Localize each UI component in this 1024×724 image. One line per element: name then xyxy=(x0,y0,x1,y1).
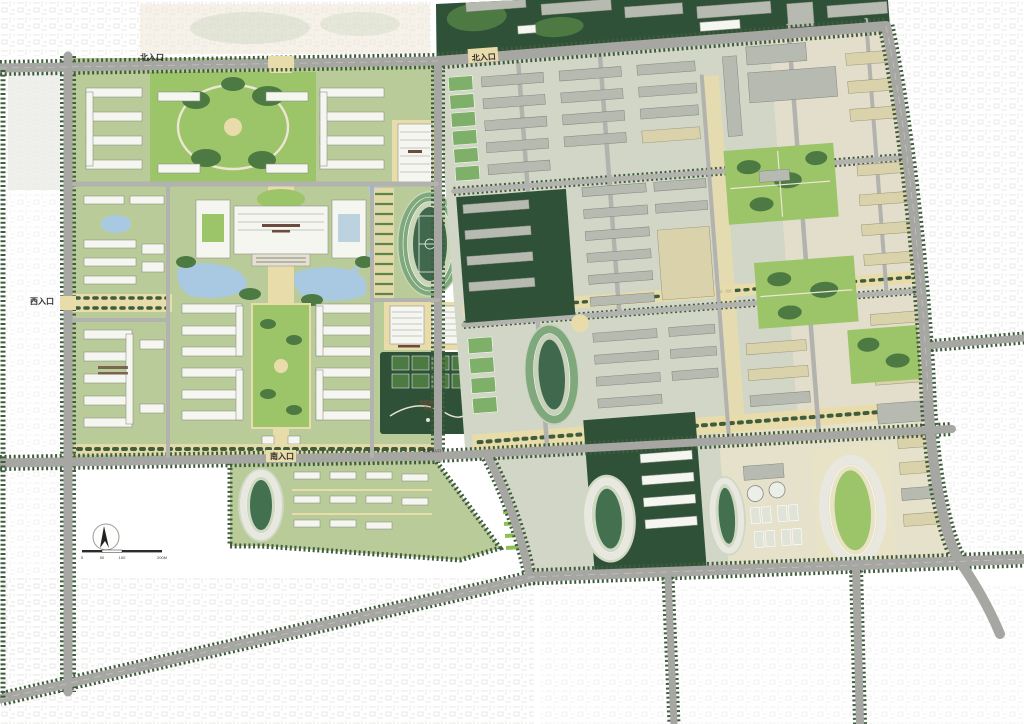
north-entrance-east-label: 北入口 xyxy=(471,51,496,63)
north-compass xyxy=(93,524,119,550)
quad-building-ne xyxy=(316,304,372,356)
campus-master-plan: 预留发展 用地 xyxy=(0,0,1024,724)
west-gate xyxy=(60,296,76,310)
scale-tick-100: 100 xyxy=(119,555,126,560)
scale-tick-200: 200M xyxy=(157,555,167,560)
south-entrance-label: 南入口 xyxy=(270,451,294,461)
bottom-vertical-road-2 xyxy=(856,566,860,724)
west-entrance-axis xyxy=(72,294,172,312)
formal-garden-3 xyxy=(847,325,921,384)
bottom-oval-3 xyxy=(810,443,897,572)
west-campus: 预留发展 用地 xyxy=(70,58,478,462)
central-museum-complex xyxy=(172,182,380,306)
quad-building-se xyxy=(316,368,372,420)
scale-tick-50: 50 xyxy=(100,555,105,560)
quad-building-sw xyxy=(182,368,243,420)
south-housing-cluster xyxy=(230,461,500,560)
campus-master-plan-map: 预留发展 用地 xyxy=(0,0,1024,724)
formal-garden-1 xyxy=(723,143,838,225)
service-entrance-label: 机动车入口 xyxy=(423,448,441,453)
scale-bar: 0 50 100 200M xyxy=(81,550,167,560)
north-gate-west-campus xyxy=(268,56,294,68)
garden-terraces xyxy=(374,188,394,300)
scale-tick-0: 0 xyxy=(81,555,84,560)
north-entrance-west-label: 北入口 xyxy=(140,52,164,62)
formal-garden-2 xyxy=(754,256,859,329)
quad-building-nw xyxy=(182,304,243,356)
west-entrance-label: 西入口 xyxy=(30,297,54,306)
